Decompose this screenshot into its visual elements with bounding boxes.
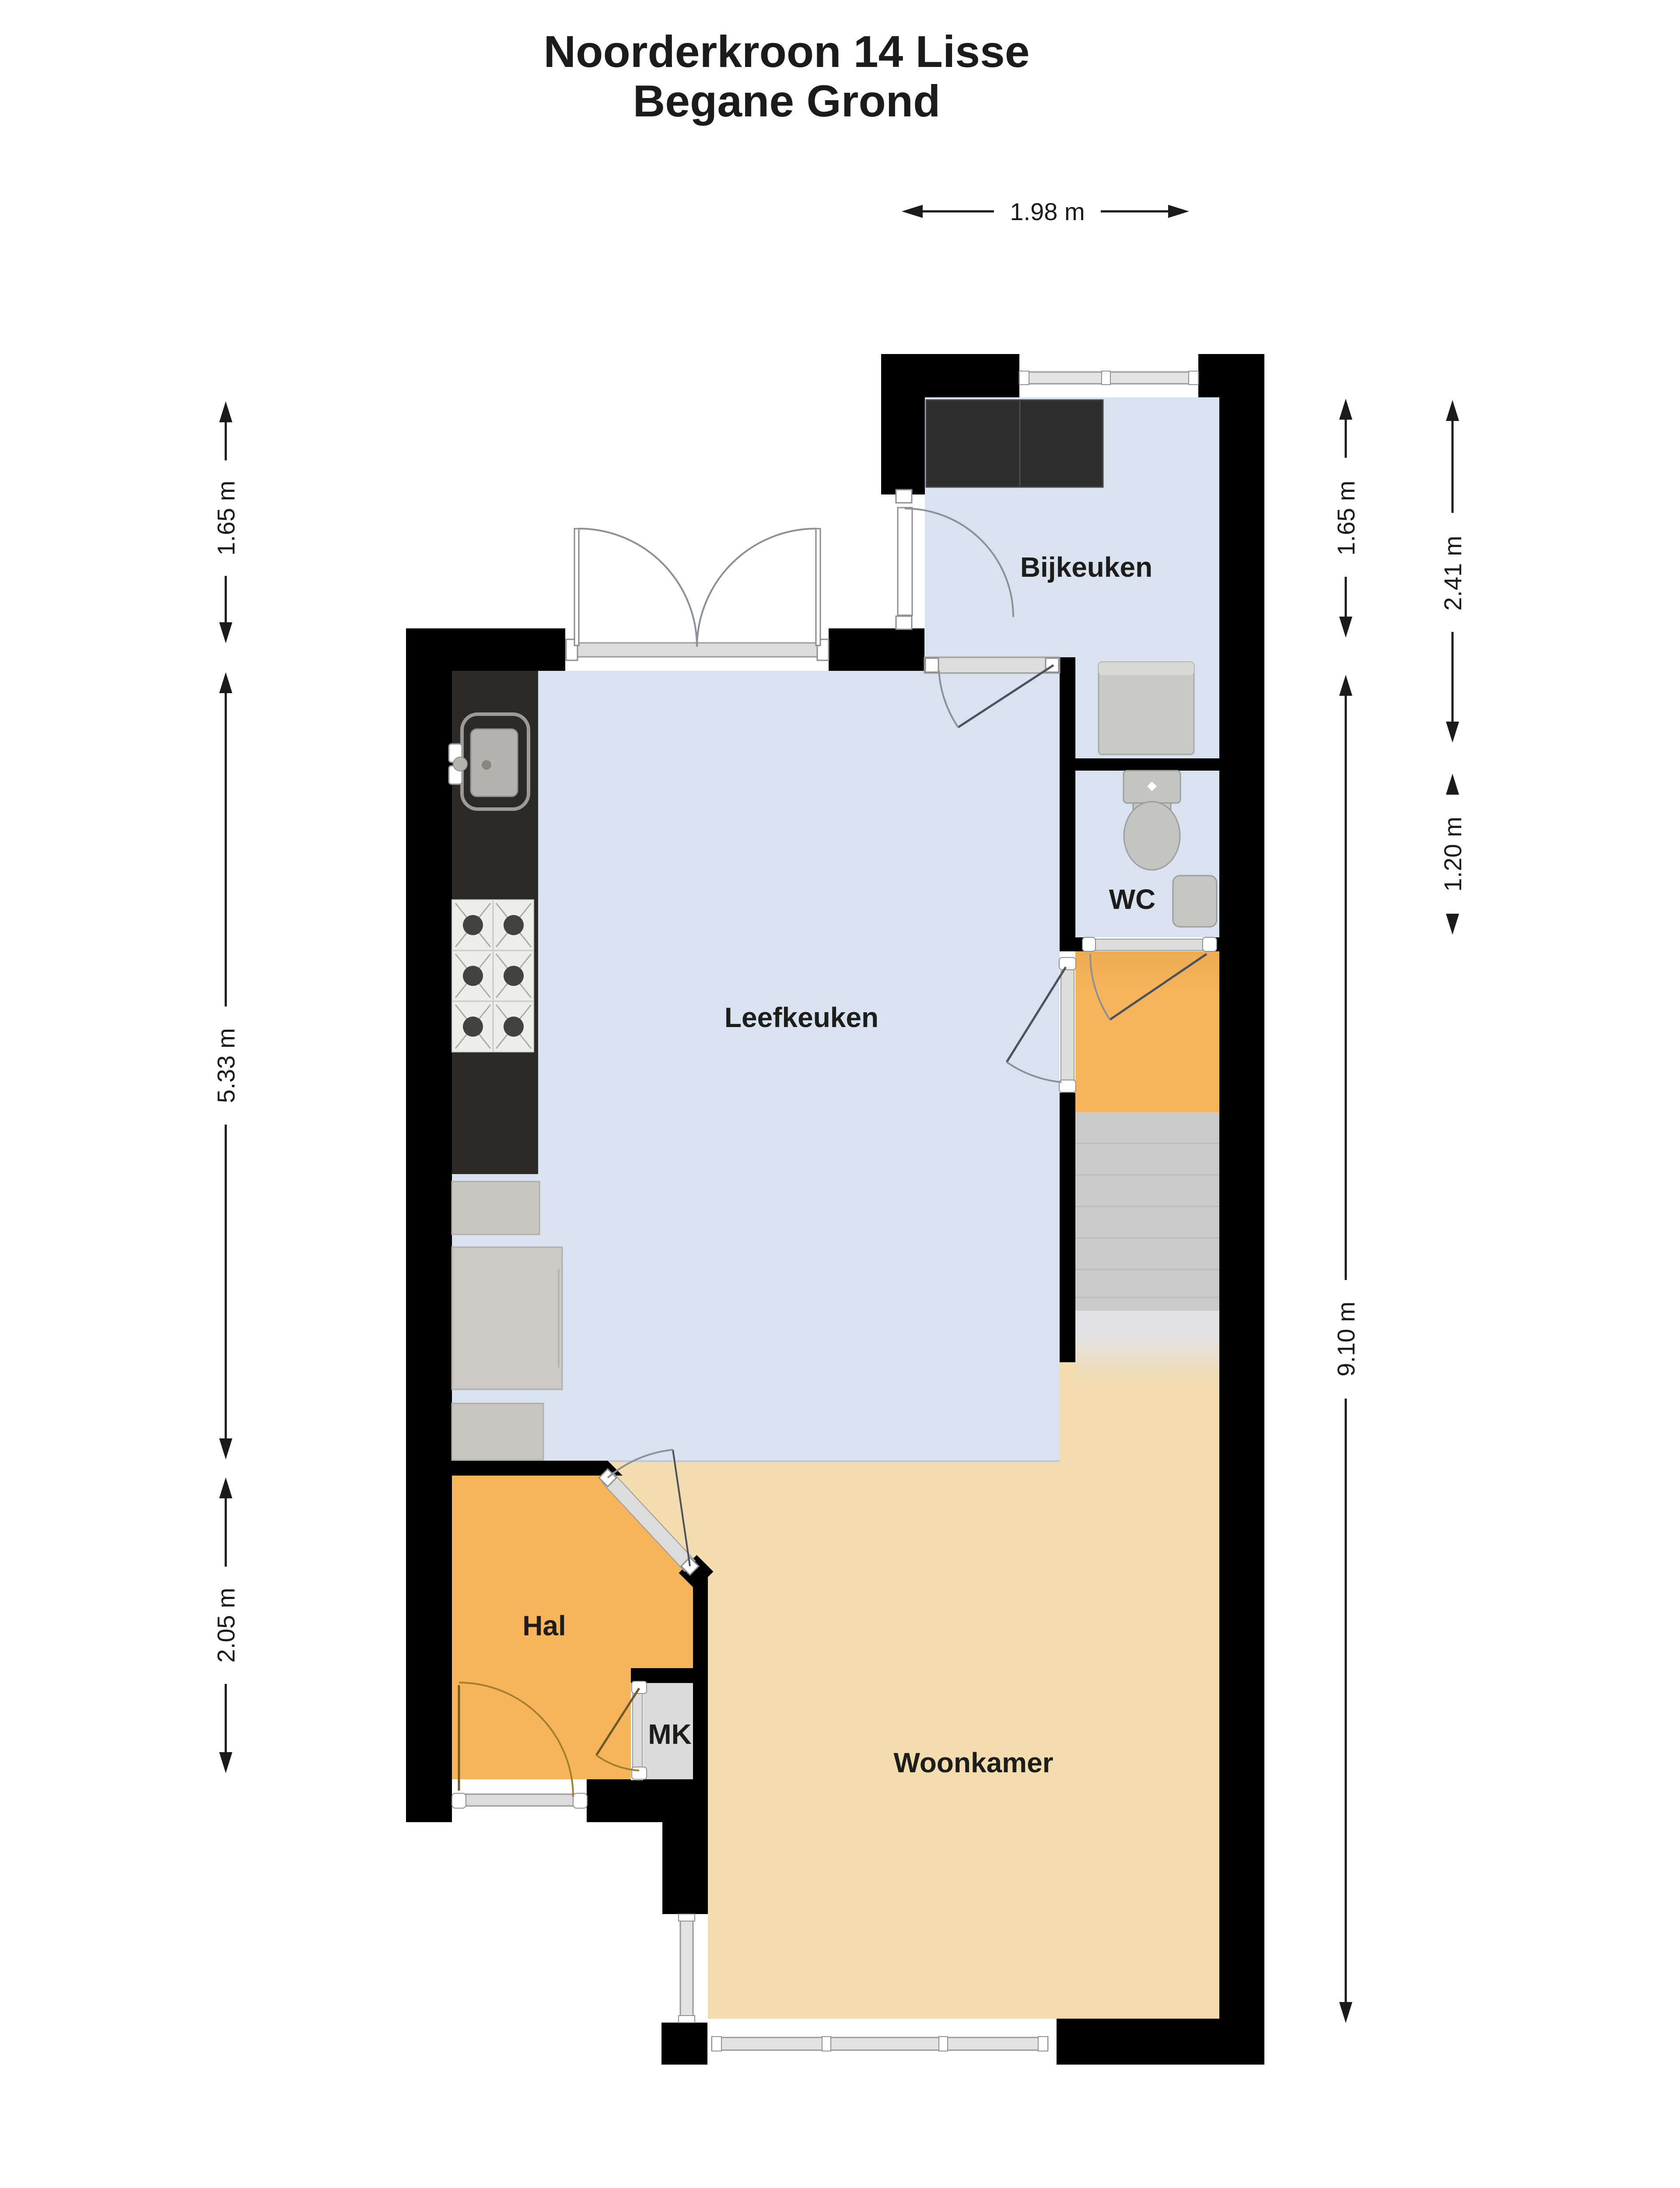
svg-text:Begane Grond: Begane Grond	[633, 76, 941, 126]
svg-text:MK: MK	[648, 1718, 692, 1750]
svg-text:1.98 m: 1.98 m	[1010, 198, 1085, 225]
svg-text:5.33 m: 5.33 m	[212, 1028, 240, 1103]
svg-text:WC: WC	[1109, 884, 1156, 915]
svg-text:Leefkeuken: Leefkeuken	[724, 1002, 878, 1033]
svg-text:1.65 m: 1.65 m	[1332, 480, 1360, 555]
svg-text:Hal: Hal	[522, 1610, 566, 1641]
svg-text:1.20 m: 1.20 m	[1439, 817, 1466, 891]
svg-text:2.41 m: 2.41 m	[1439, 536, 1466, 610]
svg-text:2.05 m: 2.05 m	[212, 1588, 240, 1662]
svg-text:9.10 m: 9.10 m	[1332, 1301, 1360, 1376]
svg-text:Noorderkroon 14 Lisse: Noorderkroon 14 Lisse	[544, 27, 1030, 77]
svg-text:Bijkeuken: Bijkeuken	[1020, 551, 1152, 583]
svg-text:1.65 m: 1.65 m	[212, 480, 240, 555]
svg-text:Woonkamer: Woonkamer	[893, 1747, 1053, 1778]
